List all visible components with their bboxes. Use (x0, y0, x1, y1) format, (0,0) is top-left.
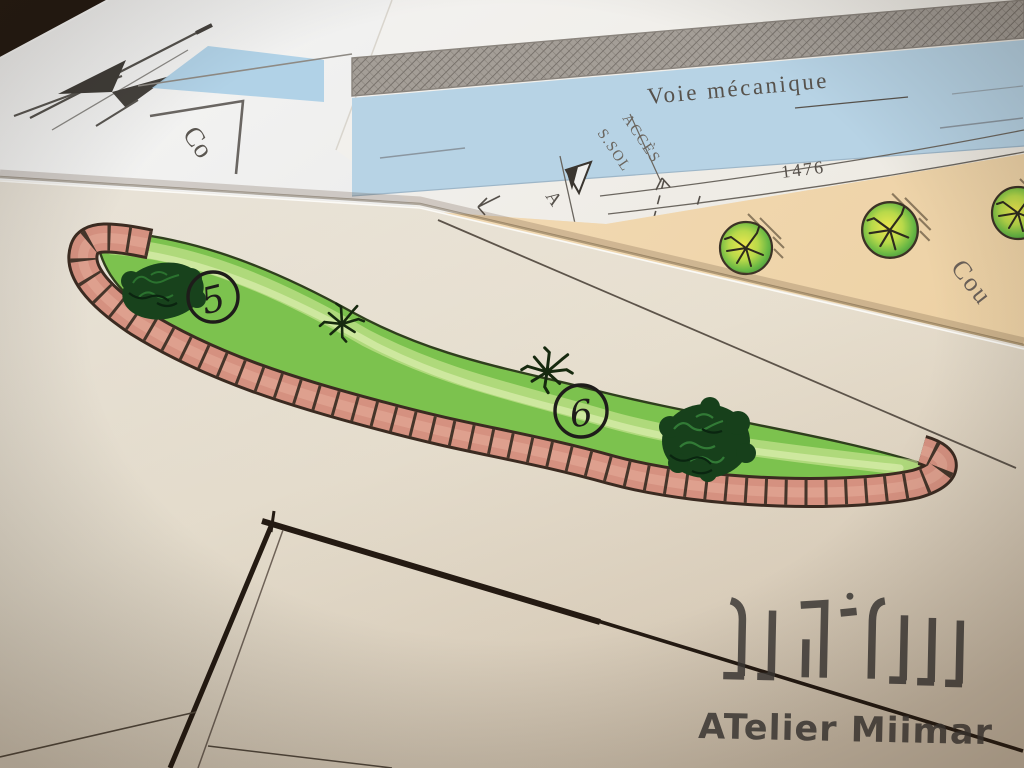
vignette-overlay (0, 0, 1024, 768)
photo-of-landscape-plans: Co Voie mécanique (0, 0, 1024, 768)
plans-photo-canvas: Co Voie mécanique (0, 0, 1024, 768)
